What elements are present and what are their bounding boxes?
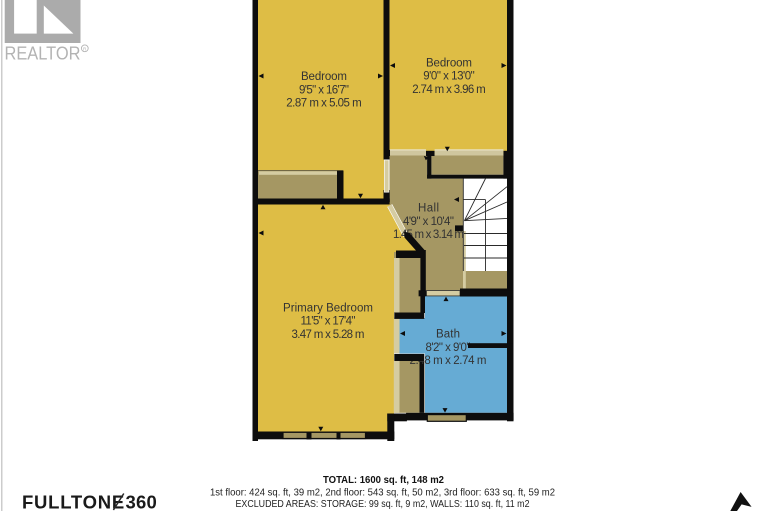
svg-text:Bedroom: Bedroom (426, 57, 472, 69)
svg-text:1.45 m x 3.14 m: 1.45 m x 3.14 m (393, 229, 464, 241)
svg-text:Hall: Hall (418, 203, 439, 215)
svg-text:8'2" x 9'0": 8'2" x 9'0" (426, 342, 471, 354)
svg-text:9'0" x 13'0": 9'0" x 13'0" (423, 71, 475, 83)
svg-text:TOTAL: 1600 sq. ft, 148 m2: TOTAL: 1600 sq. ft, 148 m2 (323, 474, 444, 486)
svg-text:4'9" x 10'4": 4'9" x 10'4" (403, 216, 454, 228)
svg-text:Bedroom: Bedroom (301, 71, 347, 83)
svg-text:FULLTONE: FULLTONE (22, 492, 125, 512)
svg-text:3.47 m x 5.28 m: 3.47 m x 5.28 m (292, 329, 365, 341)
svg-text:REALTOR: REALTOR (5, 44, 81, 64)
svg-text:Primary Bedroom: Primary Bedroom (283, 302, 373, 314)
svg-text:2.74 m x 3.96 m: 2.74 m x 3.96 m (412, 84, 486, 96)
svg-text:EXCLUDED AREAS: STORAGE: 99 sq: EXCLUDED AREAS: STORAGE: 99 sq. ft, 9 m2… (236, 498, 530, 510)
svg-text:2.87 m x 5.05 m: 2.87 m x 5.05 m (286, 98, 362, 110)
svg-text:9'5" x 16'7": 9'5" x 16'7" (299, 84, 349, 96)
svg-text:1st floor: 424 sq. ft, 39 m2,: 1st floor: 424 sq. ft, 39 m2, 2nd floor:… (210, 486, 555, 498)
svg-text:360: 360 (126, 492, 157, 512)
svg-text:Bath: Bath (436, 329, 460, 341)
svg-text:11'5" x 17'4": 11'5" x 17'4" (301, 316, 356, 328)
